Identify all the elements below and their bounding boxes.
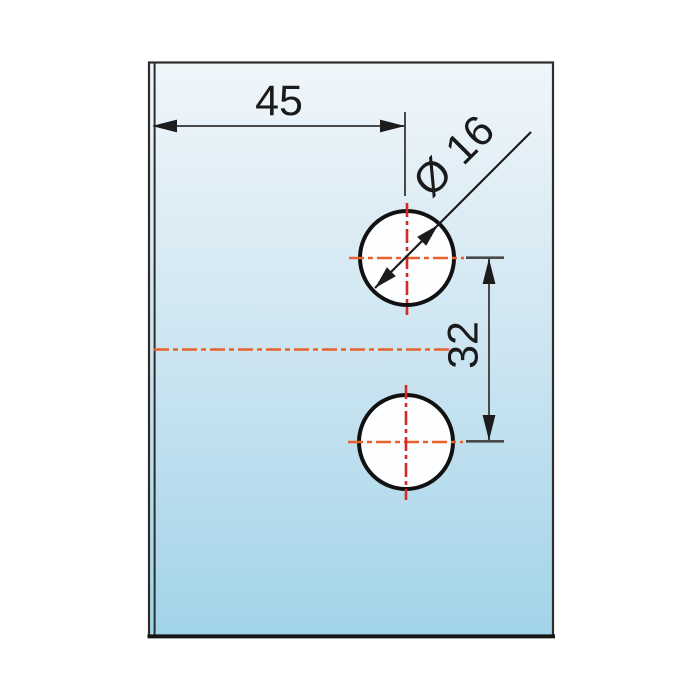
dim-32-label: 32 bbox=[440, 321, 488, 369]
drawing-canvas: 45 32 Ø 16 bbox=[0, 0, 700, 700]
dim-45-label: 45 bbox=[255, 77, 303, 125]
drawing-page: 45 32 Ø 16 bbox=[0, 0, 700, 700]
